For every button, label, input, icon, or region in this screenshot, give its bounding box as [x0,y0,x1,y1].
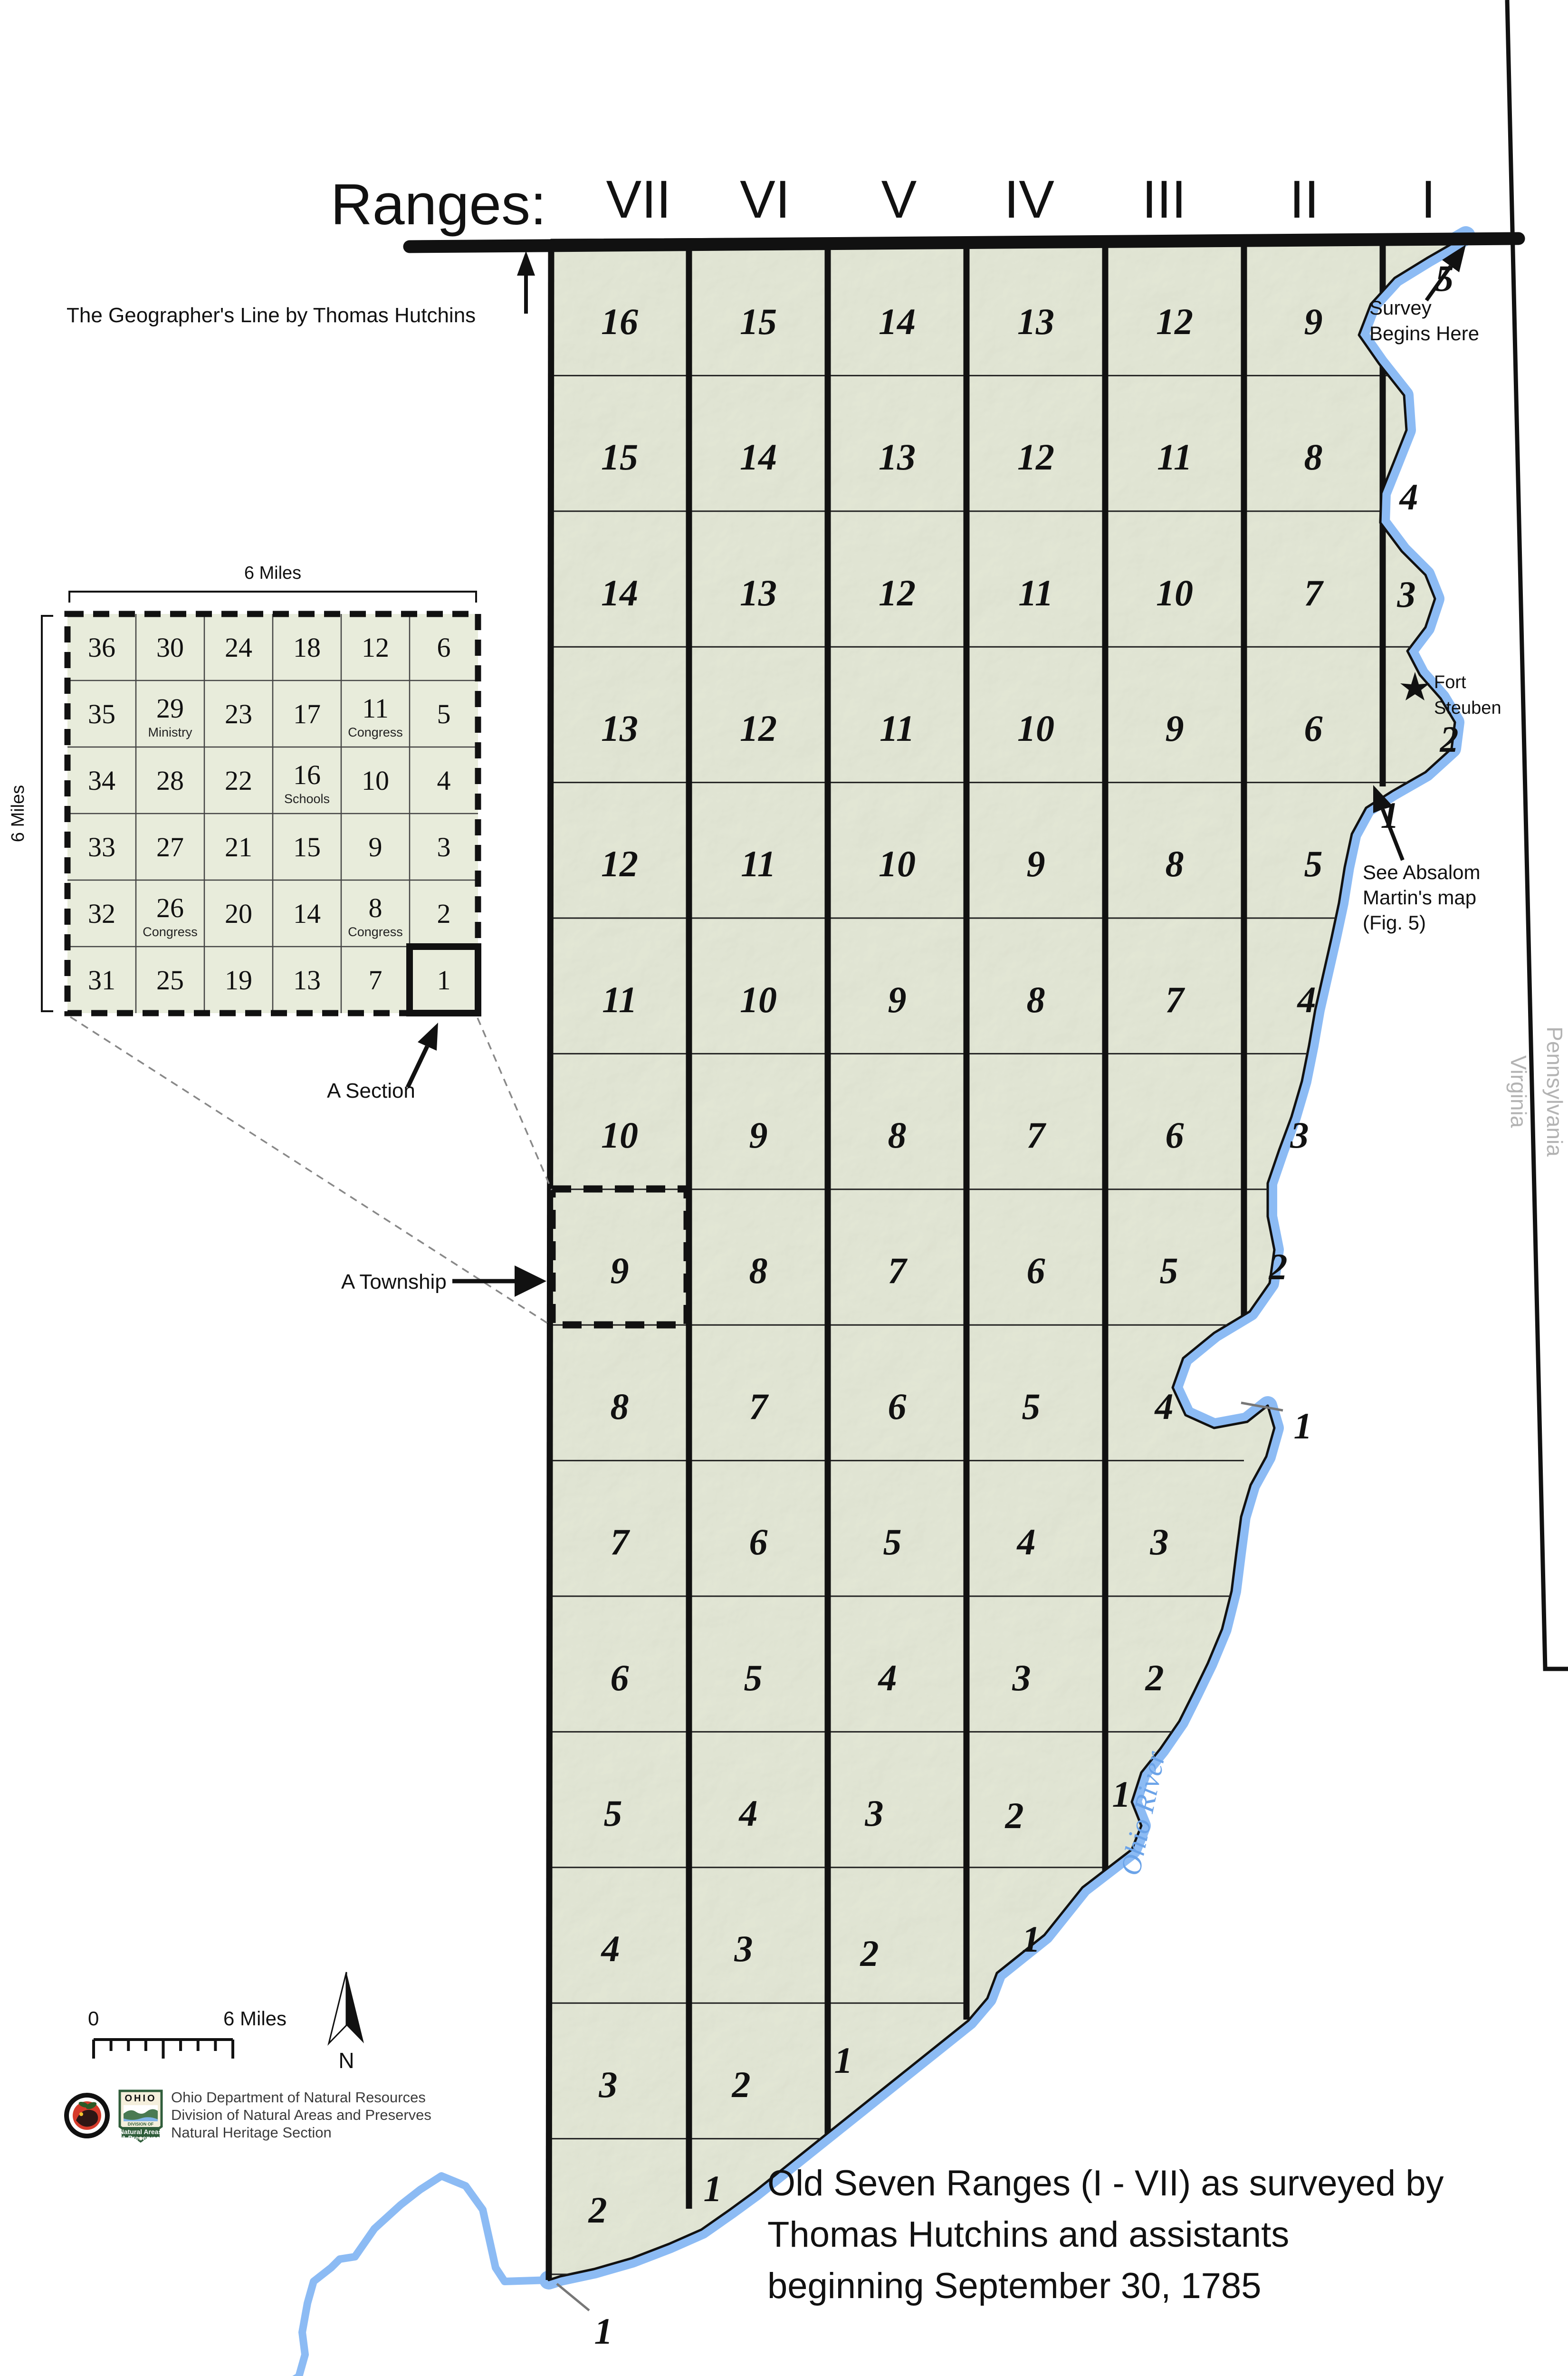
scale-ticks [94,2040,233,2059]
township-inset: 6 Miles 6 Miles 363024181263529Ministry2… [8,563,552,1326]
inset-left-scale: 6 Miles [8,785,28,842]
township-III-4: 4 [1154,1386,1174,1427]
township-VII-3: 3 [599,2064,618,2105]
inset-top-scale: 6 Miles [244,563,301,583]
township-VI-2: 2 [732,2064,751,2105]
township-IV-10: 10 [1017,708,1054,749]
range-numerals: VIIVIVIVIIIIII [606,170,1436,229]
township-VI-10: 10 [740,979,777,1020]
inset-section-28: 28 [156,765,184,796]
north-label: N [338,2048,354,2073]
township-IV-5: 5 [1022,1386,1041,1427]
township-VII-16: 16 [601,301,638,342]
credit-text: Ohio Department of Natural Resources Div… [171,2089,431,2141]
township-IV-12: 12 [1017,436,1054,478]
township-V-7: 7 [888,1250,908,1291]
township-VII-11: 11 [602,979,637,1020]
credit-line3: Natural Heritage Section [171,2124,332,2141]
inset-grid: 363024181263529Ministry231711Congress534… [67,614,478,1013]
township-VII-9: 9 [611,1250,629,1291]
shield-ohio-text: OHIO [124,2093,156,2104]
inset-section-26: 26 [156,892,184,923]
township-VI-1: 1 [704,2168,722,2209]
township-I-4: 4 [1399,476,1418,517]
township-III-3: 3 [1150,1521,1169,1562]
north-arrow-right [346,1972,364,2043]
township-IV-13: 13 [1017,301,1054,342]
township-VII-2: 2 [588,2189,607,2231]
pennsylvania-label: Pennsylvania [1542,1026,1567,1157]
township-VII-4: 4 [601,1928,620,1969]
pennsylvania-border-line [1507,0,1568,1669]
inset-section-16: 16 [293,759,321,790]
township-IV-8: 8 [1027,979,1045,1020]
township-V-13: 13 [879,436,916,478]
inset-section-16-sub: Schools [284,792,330,806]
township-VI-3: 3 [734,1928,753,1969]
township-IV-9: 9 [1027,843,1045,884]
a-section-arrow-shaft [408,1046,427,1087]
caption-line2: Thomas Hutchins and assistants [767,2214,1289,2255]
inset-section-17: 17 [293,699,321,729]
township-I-2: 2 [1440,719,1459,760]
inset-section-2: 2 [437,898,451,929]
annotation-a-township: A Township [341,1265,546,1297]
caption-line1: Old Seven Ranges (I - VII) as surveyed b… [767,2163,1444,2204]
township-III-6: 6 [1166,1114,1184,1156]
township-V-10: 10 [879,843,916,884]
inset-section-32: 32 [88,898,115,929]
a-township-arrow-head [515,1265,546,1297]
range-numeral-IV: IV [1004,170,1054,229]
inset-section-34: 34 [88,765,115,796]
inset-section-1: 1 [437,965,451,996]
township-VII-15: 15 [601,436,638,478]
township-VI-14: 14 [740,436,777,478]
township-V-4: 4 [878,1657,897,1698]
township-II-6: 6 [1304,708,1323,749]
annotation-a-section: A Section [327,1023,438,1102]
township-VI-5: 5 [744,1657,763,1698]
range-numeral-VII: VII [606,170,671,229]
township-VI-4: 4 [738,1792,758,1834]
township-VII-1-outside: 1 [594,2310,613,2352]
range-numeral-II: II [1290,170,1319,229]
inset-section-7: 7 [369,965,382,996]
township-III-10: 10 [1156,572,1193,613]
township-II-9: 9 [1304,301,1323,342]
inset-section-35: 35 [88,699,115,729]
natural-areas-shield-logo: OHIO DIVISION OF Natural Areas & Preserv… [119,2091,163,2142]
fort-steuben-line1: Fort [1434,672,1466,692]
township-III-9: 9 [1166,708,1184,749]
township-III-2: 2 [1145,1657,1164,1698]
inset-section-27: 27 [156,832,184,862]
inset-section-29: 29 [156,693,184,724]
credit-line2: Division of Natural Areas and Preserves [171,2107,431,2123]
township-V-3: 3 [865,1792,884,1834]
inset-section-29-sub: Ministry [148,725,192,739]
page: { "header": { "ranges_label": "Ranges:",… [0,0,1568,2376]
township-IV-2: 2 [1005,1795,1024,1836]
inset-section-13: 13 [293,965,321,996]
township-II-3: 3 [1290,1114,1309,1156]
township-VI-12: 12 [740,708,777,749]
inset-section-11-sub: Congress [348,725,403,739]
township-III-12: 12 [1156,301,1193,342]
township-VI-6: 6 [749,1521,768,1562]
township-II-7: 7 [1304,572,1324,613]
inset-left-bracket [42,616,53,1011]
township-IV-4: 4 [1016,1521,1036,1562]
township-VII-6: 6 [611,1657,629,1698]
township-V-9: 9 [888,979,907,1020]
range-numeral-III: III [1142,170,1186,229]
township-II-2: 2 [1269,1246,1288,1287]
township-II-4: 4 [1297,979,1316,1020]
township-VI-9: 9 [749,1114,768,1156]
township-IV-7: 7 [1027,1114,1047,1156]
inset-leader-0 [478,1018,552,1190]
inset-section-20: 20 [225,898,252,929]
geographers-arrow-head [517,251,535,276]
township-III-5: 5 [1160,1250,1178,1291]
shield-division-text: DIVISION OF [128,2122,154,2127]
township-V-8: 8 [888,1114,907,1156]
north-arrow: N [329,1972,364,2073]
township-VI-15: 15 [740,301,777,342]
scale-six-miles: 6 Miles [223,2007,287,2030]
range-numeral-V: V [881,170,917,229]
township-VI-7: 7 [749,1386,769,1427]
township-II-5: 5 [1304,843,1323,884]
township-IV-11: 11 [1018,572,1053,613]
absalom-line1: See Absalom [1363,861,1481,883]
township-VII-10: 10 [601,1114,638,1156]
inset-section-19: 19 [225,965,252,996]
township-IV-3: 3 [1012,1657,1031,1698]
range-numeral-VI: VI [740,170,790,229]
old-seven-ranges-map: 1615141312111098765432151413121110987654… [0,0,1568,2376]
geographers-line-label: The Geographer's Line by Thomas Hutchins [67,304,476,327]
township-VII-12: 12 [601,843,638,884]
township-II-8: 8 [1304,436,1323,478]
geographers-line [410,239,1519,247]
north-arrow-left [329,1972,346,2043]
inset-section-23: 23 [225,699,252,729]
fort-steuben-line2: Steuben [1434,698,1501,718]
inset-section-15: 15 [293,832,321,862]
inset-section-22: 22 [225,765,252,796]
township-VI-8: 8 [749,1250,768,1291]
inset-section-5: 5 [437,699,451,729]
seal-beak [79,2112,83,2116]
scale-zero: 0 [88,2007,99,2030]
township-I-3: 3 [1397,574,1416,615]
township-IV-1: 1 [1022,1918,1041,1960]
annotation-absalom-martin: See Absalom Martin's map (Fig. 5) [1363,785,1481,934]
inset-section-3: 3 [437,832,451,862]
credit-line1: Ohio Department of Natural Resources [171,2089,426,2106]
inset-section-11: 11 [362,693,389,724]
township-VI-11: 11 [741,843,776,884]
range-numeral-I: I [1421,170,1435,229]
inset-top-bracket [69,592,476,603]
township-V-1: 1 [834,2040,853,2081]
inset-section-4: 4 [437,765,451,796]
township-VII-8: 8 [611,1386,629,1427]
inset-section-9: 9 [369,832,382,862]
shield-preserves-text: & Preserves [122,2134,160,2142]
township-leader-0 [557,2284,589,2310]
a-section-label: A Section [327,1079,415,1102]
inset-section-18: 18 [293,632,321,663]
township-III-7: 7 [1166,979,1186,1020]
township-III-8: 8 [1166,843,1184,884]
township-IV-6: 6 [1027,1250,1045,1291]
survey-begins-line1: Survey [1369,297,1432,319]
a-township-label: A Township [341,1270,447,1293]
virginia-label: Virginia [1506,1055,1531,1128]
inset-section-8: 8 [369,892,382,923]
inset-section-8-sub: Congress [348,925,403,939]
inset-section-36: 36 [88,632,115,663]
absalom-line2: Martin's map [1363,886,1476,909]
township-VII-13: 13 [601,708,638,749]
inset-section-33: 33 [88,832,115,862]
inset-section-10: 10 [362,765,389,796]
township-VII-7: 7 [611,1521,631,1562]
inset-section-12: 12 [362,632,389,663]
caption-line3: beginning September 30, 1785 [767,2266,1261,2306]
township-VII-14: 14 [601,572,638,613]
inset-section-25: 25 [156,965,184,996]
inset-section-14: 14 [293,898,321,929]
scale-bar: 0 6 Miles [88,2007,287,2059]
map-caption: Old Seven Ranges (I - VII) as surveyed b… [767,2163,1444,2306]
absalom-line3: (Fig. 5) [1363,911,1426,934]
inset-section-26-sub: Congress [143,925,198,939]
inset-section-31: 31 [88,965,115,996]
inset-section-21: 21 [225,832,252,862]
a-section-arrow-head [418,1023,438,1051]
township-V-6: 6 [888,1386,907,1427]
township-V-11: 11 [880,708,915,749]
inset-section-6: 6 [437,632,451,663]
annotation-geographers-line: The Geographer's Line by Thomas Hutchins [67,251,535,327]
township-V-5: 5 [883,1521,902,1562]
inset-section-24: 24 [225,632,252,663]
township-V-14: 14 [879,301,916,342]
township-II-1-outside: 1 [1294,1405,1312,1447]
township-III-11: 11 [1157,436,1192,478]
survey-begins-line2: Begins Here [1369,322,1479,345]
township-VI-13: 13 [740,572,777,613]
township-V-12: 12 [879,572,916,613]
ranges-title: Ranges: [331,172,546,237]
township-VII-5: 5 [604,1792,622,1834]
ohio-river-tail [136,2176,549,2376]
township-V-2: 2 [860,1933,879,1974]
inset-section-30: 30 [156,632,184,663]
